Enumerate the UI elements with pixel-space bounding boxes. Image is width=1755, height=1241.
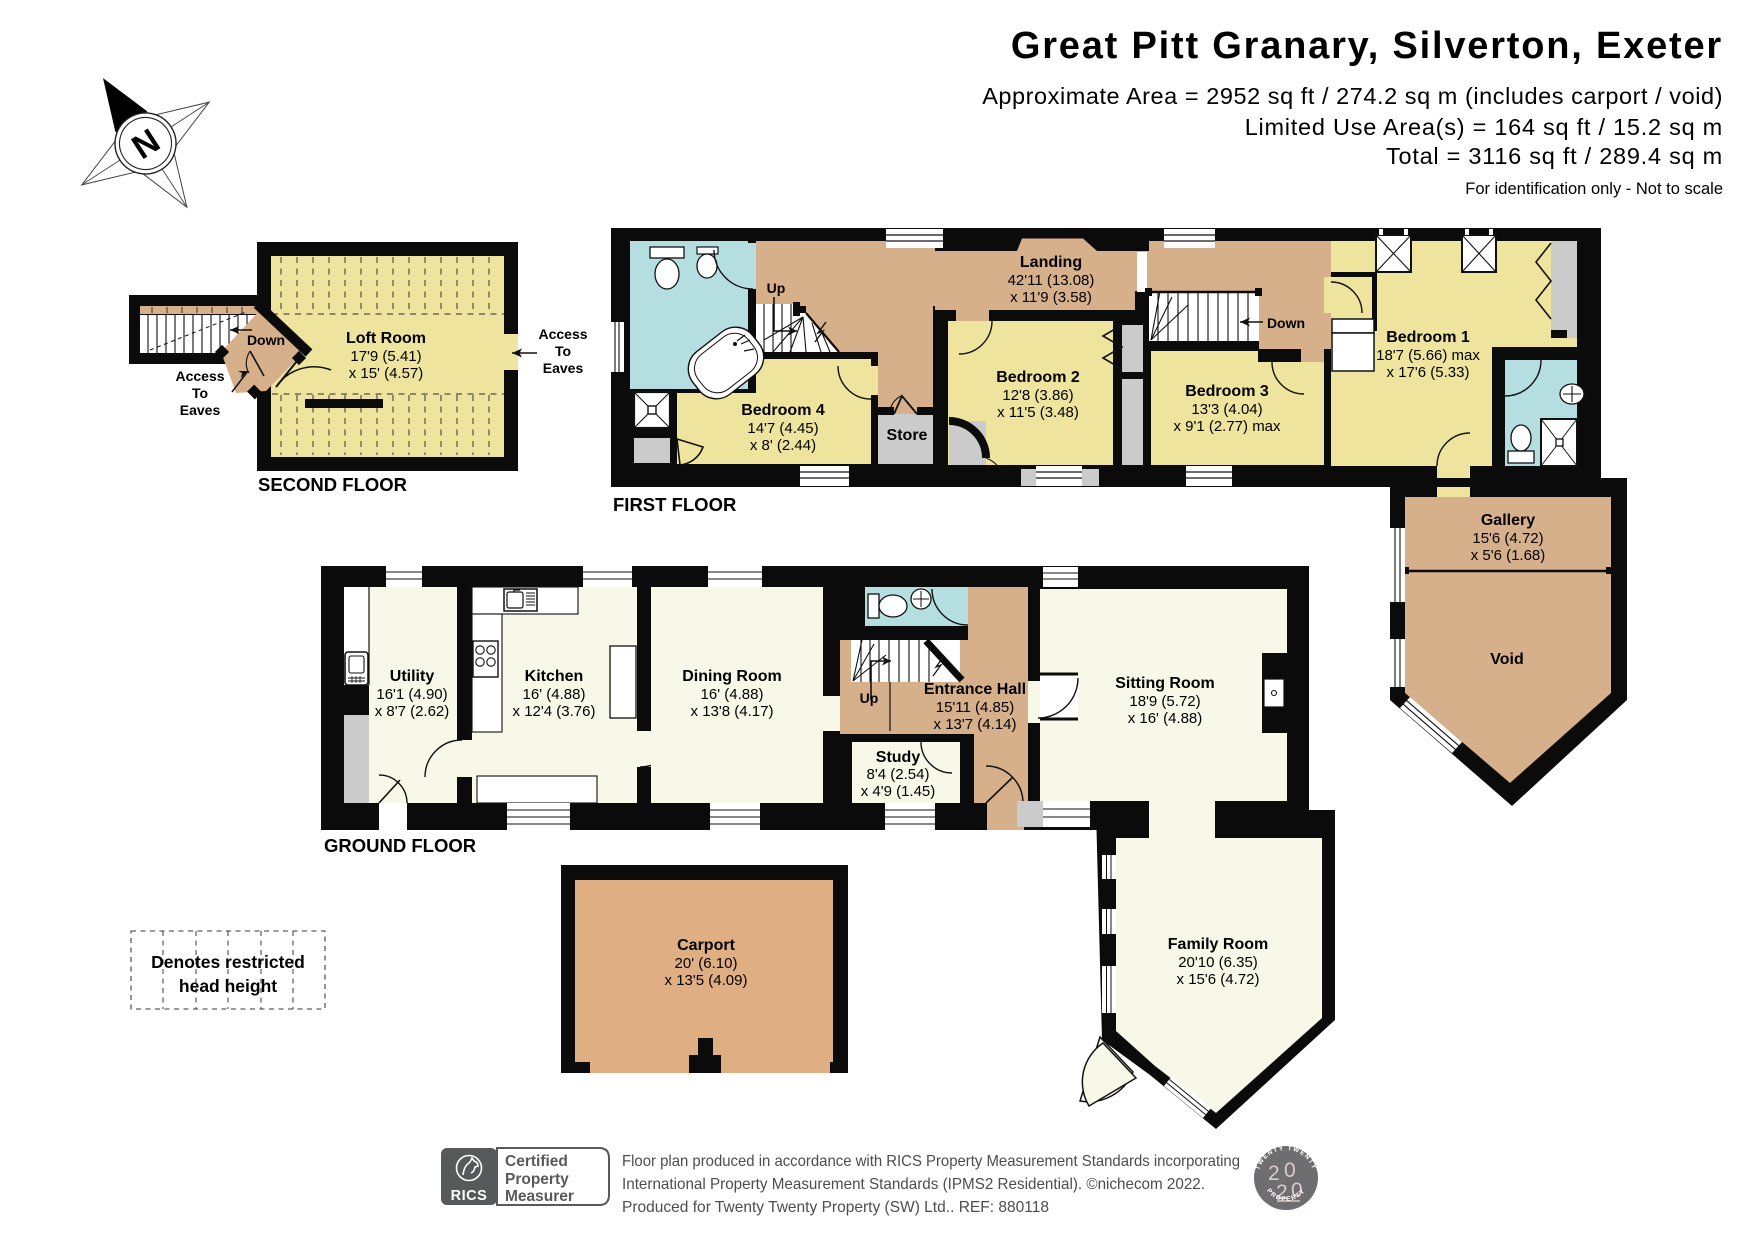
- svg-text:Gallery: Gallery: [1481, 512, 1535, 529]
- svg-text:Sitting Room: Sitting Room: [1115, 675, 1215, 692]
- svg-text:18'7 (5.66) max: 18'7 (5.66) max: [1376, 347, 1480, 364]
- svg-text:20'10 (6.35): 20'10 (6.35): [1178, 954, 1258, 971]
- svg-text:International Property Measure: International Property Measurement Stand…: [622, 1176, 1205, 1193]
- svg-text:Bedroom 3: Bedroom 3: [1185, 383, 1269, 400]
- svg-text:FIRST FLOOR: FIRST FLOOR: [613, 494, 736, 515]
- svg-text:Up: Up: [860, 690, 879, 706]
- svg-text:14'7 (4.45): 14'7 (4.45): [747, 420, 818, 437]
- svg-text:To: To: [192, 385, 208, 401]
- svg-text:Landing: Landing: [1020, 254, 1082, 271]
- svg-text:Down: Down: [1267, 315, 1305, 331]
- svg-text:Property: Property: [505, 1171, 569, 1188]
- svg-text:For identification only - Not: For identification only - Not to scale: [1465, 180, 1723, 198]
- svg-text:Measurer: Measurer: [505, 1188, 574, 1205]
- svg-text:Store: Store: [887, 427, 928, 444]
- svg-text:Denotes restricted: Denotes restricted: [151, 952, 305, 972]
- svg-text:x 15'6 (4.72): x 15'6 (4.72): [1177, 971, 1260, 988]
- svg-text:x 9'1 (2.77) max: x 9'1 (2.77) max: [1173, 418, 1281, 435]
- svg-text:Total = 3116 sq ft / 289.4 sq: Total = 3116 sq ft / 289.4 sq m: [1386, 143, 1723, 169]
- svg-text:GROUND FLOOR: GROUND FLOOR: [324, 835, 476, 856]
- svg-text:x 12'4 (3.76): x 12'4 (3.76): [513, 703, 596, 720]
- svg-text:Approximate Area = 2952 sq ft: Approximate Area = 2952 sq ft / 274.2 sq…: [982, 83, 1723, 109]
- svg-text:Bedroom 4: Bedroom 4: [741, 402, 825, 419]
- svg-text:x 13'7 (4.14): x 13'7 (4.14): [934, 716, 1017, 733]
- svg-text:15'11 (4.85): 15'11 (4.85): [936, 699, 1014, 716]
- svg-text:To: To: [555, 343, 571, 359]
- svg-text:Loft Room: Loft Room: [346, 330, 426, 347]
- svg-text:x 13'5 (4.09): x 13'5 (4.09): [665, 972, 748, 989]
- svg-text:Floor plan produced in accorda: Floor plan produced in accordance with R…: [622, 1153, 1240, 1170]
- svg-text:Entrance Hall: Entrance Hall: [924, 681, 1026, 698]
- svg-text:x 5'6 (1.68): x 5'6 (1.68): [1471, 547, 1546, 564]
- svg-text:x 11'9 (3.58): x 11'9 (3.58): [1010, 289, 1092, 306]
- svg-text:15'6 (4.72): 15'6 (4.72): [1472, 530, 1543, 547]
- svg-text:Eaves: Eaves: [543, 360, 584, 376]
- svg-text:8'4 (2.54): 8'4 (2.54): [867, 766, 930, 783]
- svg-text:Down: Down: [247, 332, 285, 348]
- svg-text:18'9 (5.72): 18'9 (5.72): [1129, 693, 1200, 710]
- svg-text:16' (4.88): 16' (4.88): [701, 686, 764, 703]
- svg-text:Dining Room: Dining Room: [682, 668, 782, 685]
- svg-text:x 4'9 (1.45): x 4'9 (1.45): [861, 783, 936, 800]
- svg-text:Family Room: Family Room: [1168, 936, 1268, 953]
- svg-text:Access: Access: [175, 368, 224, 384]
- svg-text:Kitchen: Kitchen: [525, 668, 584, 685]
- svg-text:16'1 (4.90): 16'1 (4.90): [376, 686, 447, 703]
- svg-text:Produced for Twenty Twenty Pro: Produced for Twenty Twenty Property (SW)…: [622, 1199, 1049, 1216]
- svg-text:Utility: Utility: [390, 668, 435, 685]
- svg-text:Void: Void: [1490, 651, 1523, 668]
- svg-text:Access: Access: [538, 326, 587, 342]
- svg-text:20' (6.10): 20' (6.10): [675, 955, 738, 972]
- svg-text:SECOND FLOOR: SECOND FLOOR: [258, 474, 407, 495]
- svg-text:12'8 (3.86): 12'8 (3.86): [1002, 387, 1073, 404]
- svg-text:x 16' (4.88): x 16' (4.88): [1128, 710, 1203, 727]
- svg-text:Bedroom 1: Bedroom 1: [1386, 329, 1470, 346]
- svg-text:13'3 (4.04): 13'3 (4.04): [1191, 401, 1262, 418]
- svg-text:x 8' (2.44): x 8' (2.44): [750, 437, 816, 454]
- svg-text:Limited Use Area(s) = 164 sq f: Limited Use Area(s) = 164 sq ft / 15.2 s…: [1245, 114, 1723, 140]
- svg-text:17'9 (5.41): 17'9 (5.41): [350, 348, 421, 365]
- svg-text:x 11'5 (3.48): x 11'5 (3.48): [997, 404, 1079, 421]
- svg-text:Carport: Carport: [677, 937, 735, 954]
- svg-text:x 17'6 (5.33): x 17'6 (5.33): [1387, 364, 1470, 381]
- svg-text:Bedroom 2: Bedroom 2: [996, 369, 1080, 386]
- svg-text:Certified: Certified: [505, 1153, 568, 1170]
- svg-text:Up: Up: [767, 280, 786, 296]
- svg-text:Eaves: Eaves: [180, 402, 221, 418]
- svg-text:RICS: RICS: [451, 1188, 488, 1204]
- svg-text:Great Pitt Granary, Silverton,: Great Pitt Granary, Silverton, Exeter: [1011, 25, 1723, 67]
- svg-text:x 15' (4.57): x 15' (4.57): [349, 365, 424, 382]
- svg-text:head height: head height: [179, 976, 277, 996]
- svg-text:x 8'7 (2.62): x 8'7 (2.62): [375, 703, 450, 720]
- svg-text:x 13'8 (4.17): x 13'8 (4.17): [691, 703, 774, 720]
- svg-text:16' (4.88): 16' (4.88): [523, 686, 586, 703]
- svg-text:Study: Study: [876, 749, 921, 766]
- svg-text:42'11 (13.08): 42'11 (13.08): [1008, 272, 1095, 289]
